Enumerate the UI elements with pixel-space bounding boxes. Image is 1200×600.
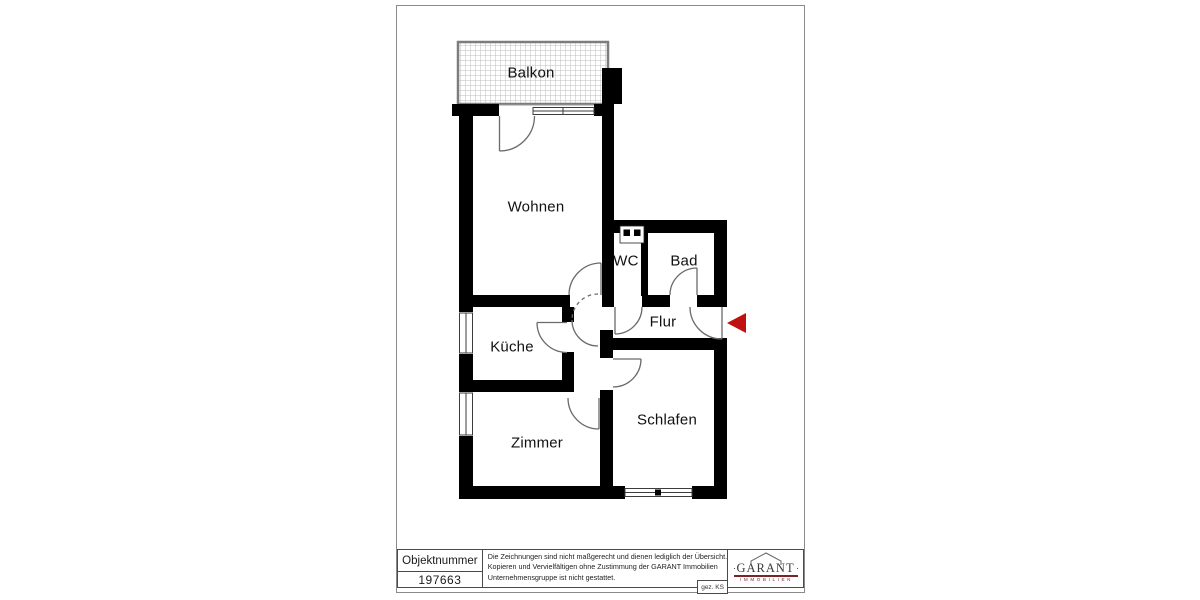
room-label-balkon: Balkon (507, 65, 554, 82)
entrance-arrow-icon (727, 313, 746, 333)
disclaimer-line-3: Unternehmensgruppe ist nicht gestattet. (488, 573, 727, 583)
room-label-bad: Bad (670, 253, 697, 270)
logo-cell: GARANT IMMOBILIEN (728, 550, 803, 587)
title-block: Objektnummer 197663 Die Zeichnungen sind… (397, 549, 804, 588)
object-number-cell: Objektnummer 197663 (398, 550, 483, 587)
logo-roof-icon (749, 552, 783, 566)
screenshot-canvas: Balkon Wohnen WC Bad Flur Küche Zimmer S… (0, 0, 1200, 600)
disclaimer-line-2: Kopieren und Vervielfältigen ohne Zustim… (488, 562, 727, 572)
signature-box: gez. KS (697, 580, 728, 594)
room-label-kueche: Küche (490, 339, 534, 356)
garant-logo: GARANT IMMOBILIEN (734, 554, 798, 583)
room-label-zimmer: Zimmer (511, 435, 563, 452)
room-label-wohnen: Wohnen (508, 199, 565, 216)
logo-subtitle: IMMOBILIEN (734, 578, 798, 583)
logo-rule-right (797, 568, 798, 569)
object-number-label: Objektnummer (398, 550, 482, 572)
logo-rule-left (734, 568, 735, 569)
disclaimer-line-1: Die Zeichnungen sind nicht maßgerecht un… (488, 552, 727, 562)
shaft-symbol (620, 226, 644, 243)
disclaimer-cell: Die Zeichnungen sind nicht maßgerecht un… (483, 550, 728, 587)
room-label-flur: Flur (650, 314, 677, 331)
walls (452, 68, 727, 499)
room-label-wc: WC (613, 253, 638, 270)
object-number-value: 197663 (398, 572, 482, 587)
floor-plan-drawing (0, 0, 1200, 600)
room-label-schlafen: Schlafen (637, 412, 697, 429)
